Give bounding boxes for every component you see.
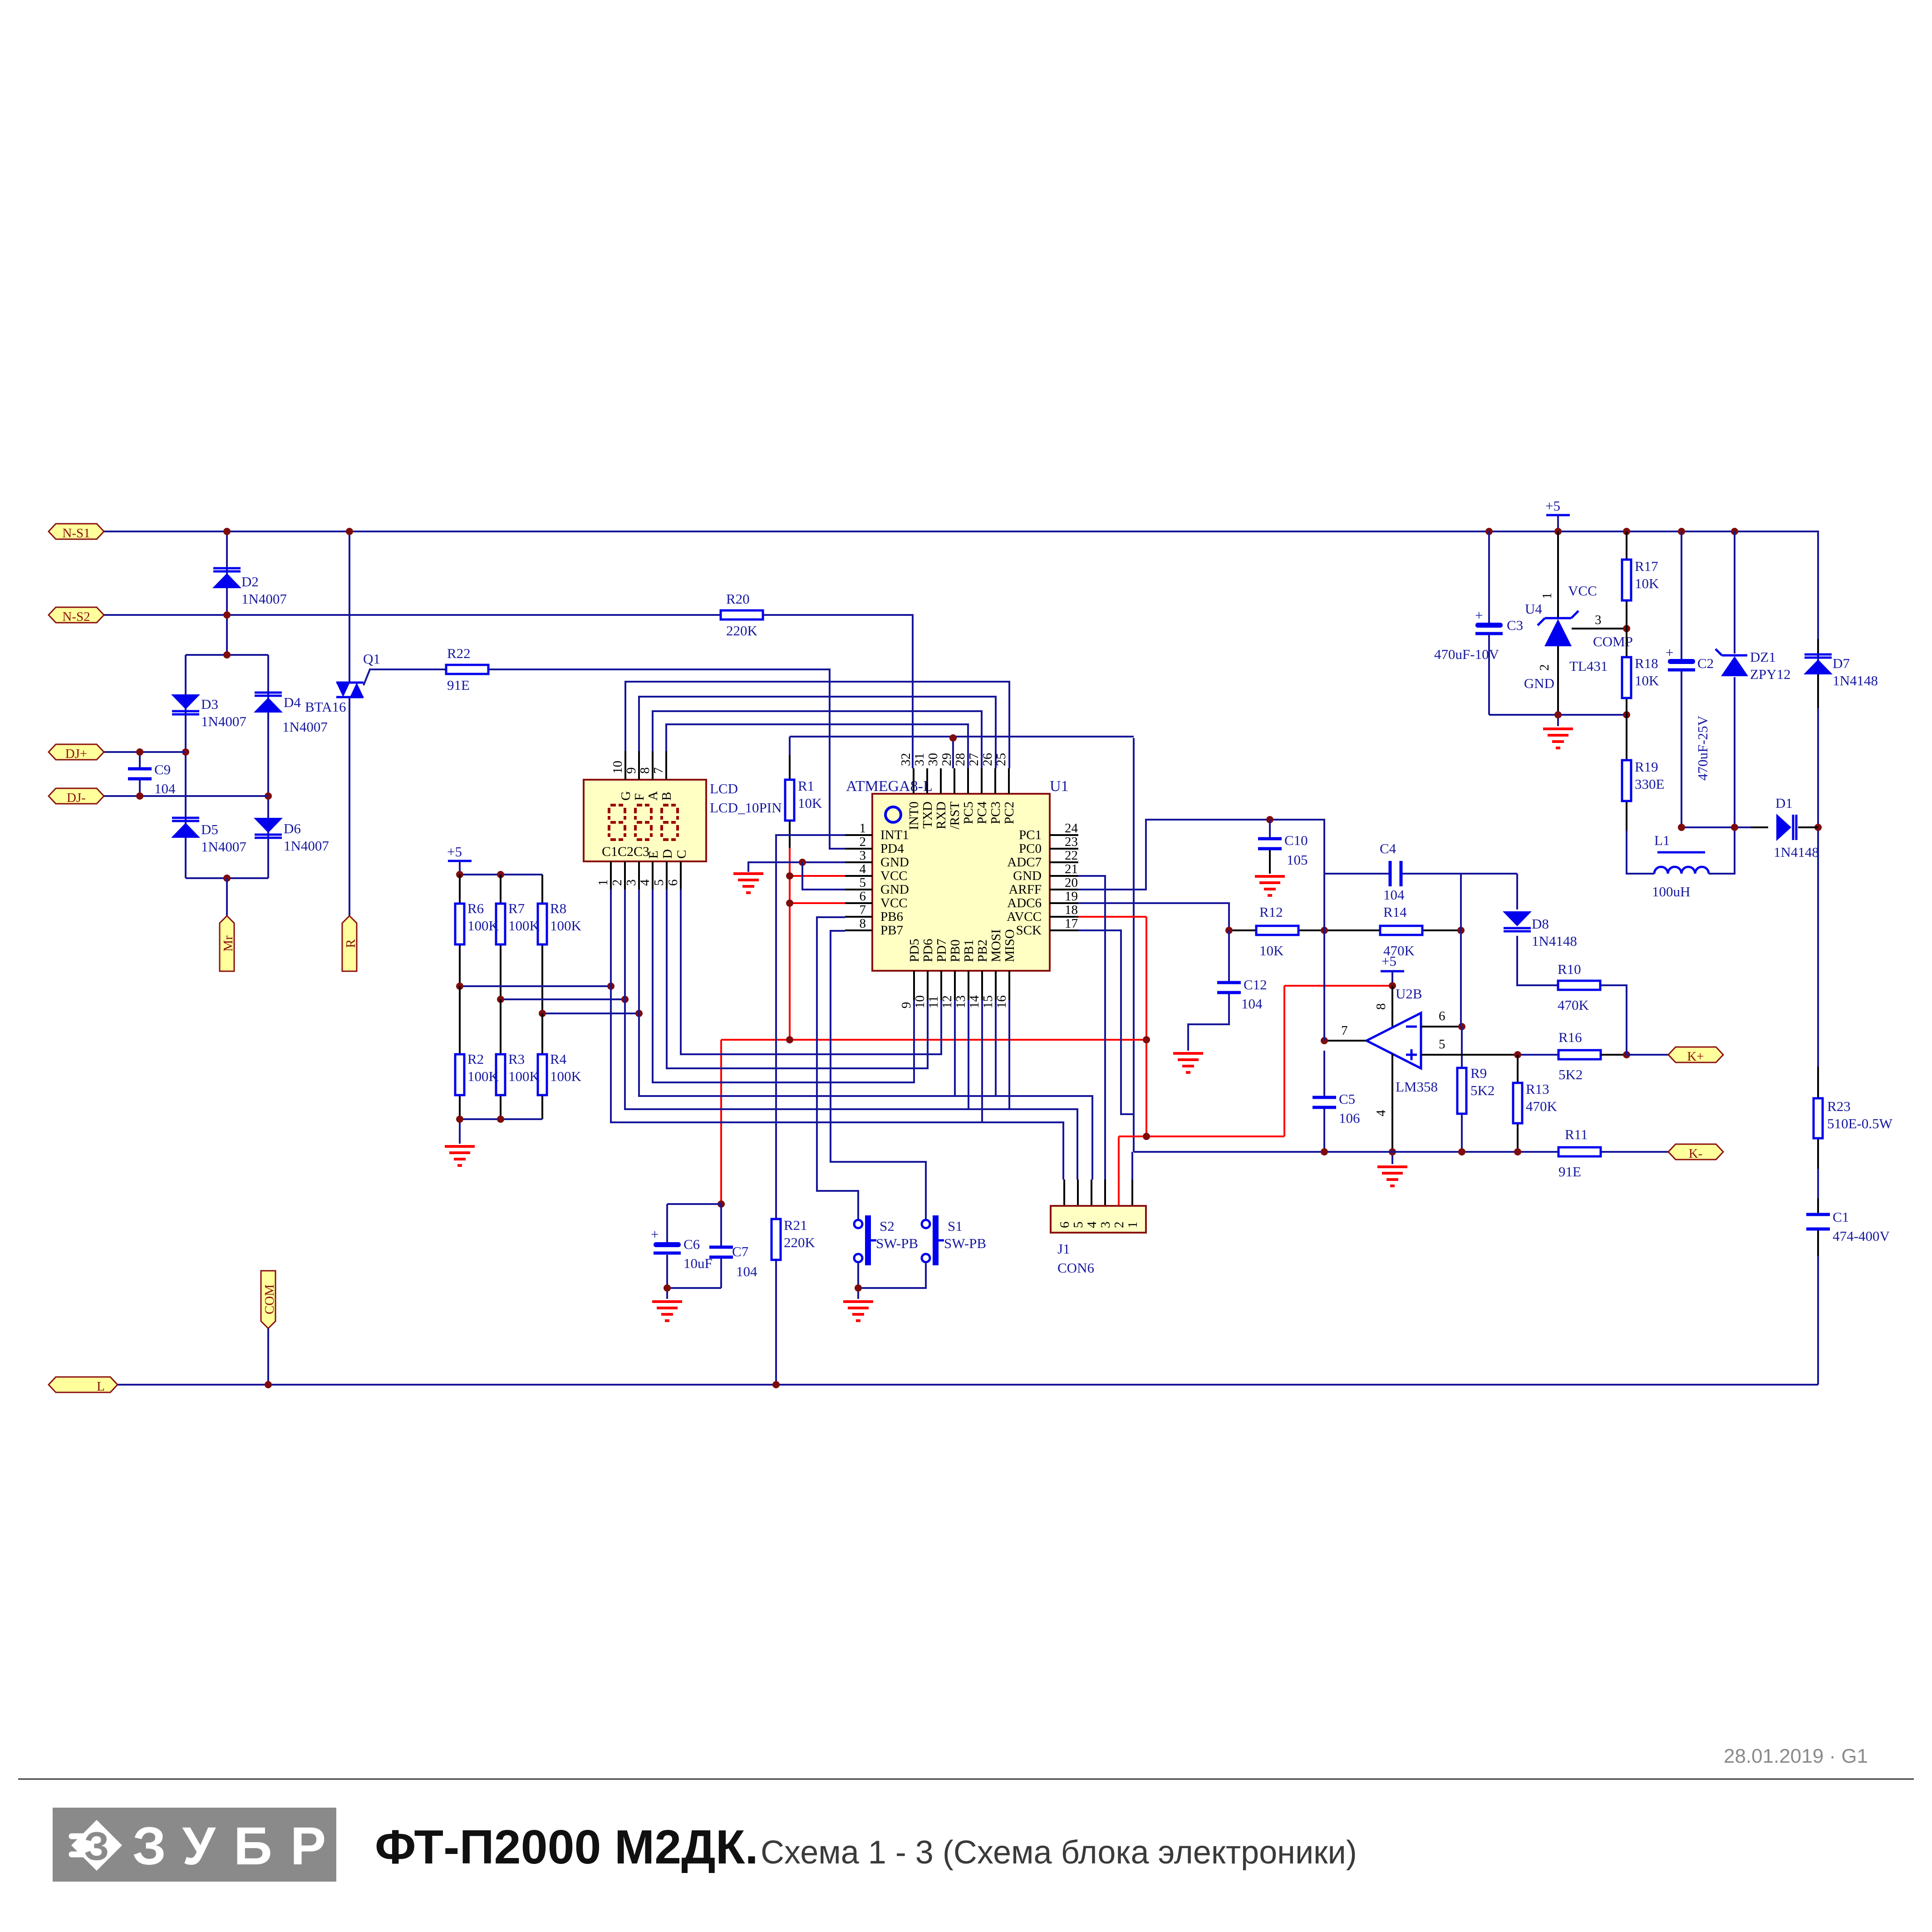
svg-text:ZPY12: ZPY12 — [1750, 666, 1791, 682]
svg-text:DZ1: DZ1 — [1750, 649, 1776, 665]
svg-text:PD7: PD7 — [934, 939, 949, 962]
svg-text:D2: D2 — [241, 574, 259, 590]
svg-text:4: 4 — [1374, 1110, 1388, 1116]
svg-text:R14: R14 — [1383, 904, 1407, 920]
svg-text:106: 106 — [1339, 1110, 1360, 1126]
svg-text:D7: D7 — [1833, 655, 1850, 671]
svg-text:104: 104 — [736, 1263, 757, 1279]
svg-text:PC5: PC5 — [961, 801, 976, 824]
svg-text:6: 6 — [666, 880, 680, 886]
svg-text:PD4: PD4 — [880, 841, 904, 856]
svg-text:K-: K- — [1689, 1146, 1703, 1161]
svg-text:14: 14 — [967, 995, 982, 1009]
svg-text:20: 20 — [1065, 875, 1078, 890]
svg-text:3: 3 — [860, 848, 866, 863]
svg-text:TL431: TL431 — [1569, 658, 1608, 674]
svg-text:1N4007: 1N4007 — [201, 713, 246, 729]
svg-text:22: 22 — [1065, 848, 1078, 863]
svg-text:330E: 330E — [1635, 776, 1664, 792]
svg-text:GND: GND — [880, 882, 909, 897]
svg-text:100K: 100K — [508, 1068, 540, 1084]
svg-text:PB6: PB6 — [880, 909, 903, 924]
svg-text:21: 21 — [1065, 862, 1078, 876]
svg-text:R1: R1 — [798, 778, 814, 794]
svg-text:SW-PB: SW-PB — [876, 1235, 918, 1251]
svg-text:7: 7 — [860, 903, 866, 917]
svg-text:З: З — [84, 1824, 109, 1868]
svg-text:PC3: PC3 — [988, 801, 1003, 824]
svg-text:SW-PB: SW-PB — [944, 1235, 986, 1251]
svg-text:9: 9 — [624, 767, 639, 774]
svg-text:C5: C5 — [1339, 1091, 1355, 1107]
svg-text:470K: 470K — [1526, 1098, 1558, 1114]
svg-text:1N4007: 1N4007 — [241, 591, 287, 607]
svg-text:10uF: 10uF — [683, 1255, 713, 1271]
svg-text:C1C2C3: C1C2C3 — [602, 844, 649, 859]
svg-text:2: 2 — [610, 880, 624, 886]
svg-text:9: 9 — [899, 1002, 914, 1009]
svg-text:R3: R3 — [508, 1051, 525, 1067]
svg-text:ADC6: ADC6 — [1007, 896, 1042, 910]
svg-text:ЗУБР: ЗУБР — [133, 1816, 344, 1876]
svg-text:24: 24 — [1065, 821, 1078, 836]
svg-text:1: 1 — [596, 880, 610, 886]
svg-text:MISO: MISO — [1003, 929, 1017, 962]
svg-text:R9: R9 — [1470, 1065, 1487, 1081]
svg-text:91E: 91E — [1558, 1164, 1581, 1180]
svg-text:S1: S1 — [948, 1218, 963, 1234]
svg-text:2: 2 — [860, 835, 866, 849]
svg-text:ARFF: ARFF — [1008, 882, 1042, 897]
svg-text:8: 8 — [638, 767, 652, 774]
svg-text:LM358: LM358 — [1396, 1079, 1438, 1095]
svg-text:7: 7 — [1341, 1023, 1348, 1038]
svg-text:19: 19 — [1065, 889, 1078, 904]
svg-text:220K: 220K — [784, 1234, 816, 1250]
svg-text:INT0: INT0 — [907, 801, 921, 830]
svg-text:PB1: PB1 — [962, 939, 976, 962]
svg-text:DJ-: DJ- — [67, 791, 86, 805]
svg-text:PC2: PC2 — [1002, 801, 1017, 824]
svg-text:8: 8 — [860, 916, 866, 931]
svg-text:100uH: 100uH — [1652, 884, 1690, 900]
svg-text:4: 4 — [1085, 1221, 1099, 1228]
svg-text:U2B: U2B — [1396, 986, 1422, 1002]
svg-text:RXD: RXD — [934, 801, 949, 829]
svg-text:R22: R22 — [447, 645, 471, 661]
svg-text:6: 6 — [860, 889, 866, 904]
svg-text:510E-0.5W: 510E-0.5W — [1827, 1116, 1893, 1131]
svg-text:/RST: /RST — [948, 801, 962, 830]
svg-text:R8: R8 — [550, 900, 566, 916]
svg-text:28: 28 — [953, 753, 968, 766]
svg-text:4: 4 — [638, 879, 652, 886]
svg-text:23: 23 — [1065, 835, 1078, 849]
svg-text:N-S1: N-S1 — [62, 526, 90, 541]
svg-text:C2: C2 — [1697, 655, 1714, 671]
svg-text:COM: COM — [262, 1284, 277, 1314]
svg-text:100K: 100K — [550, 1068, 582, 1084]
svg-text:C3: C3 — [1507, 617, 1523, 633]
svg-text:12: 12 — [940, 995, 954, 1008]
svg-text:R10: R10 — [1558, 961, 1581, 977]
svg-text:2: 2 — [1537, 664, 1552, 671]
svg-text:Mr: Mr — [221, 935, 236, 952]
svg-text:1: 1 — [860, 821, 866, 836]
svg-text:VCC: VCC — [880, 869, 908, 883]
svg-text:PD6: PD6 — [921, 939, 935, 962]
svg-text:C10: C10 — [1284, 832, 1308, 848]
svg-text:C12: C12 — [1244, 977, 1267, 993]
svg-text:3: 3 — [1098, 1222, 1113, 1229]
svg-text:5K2: 5K2 — [1470, 1082, 1494, 1098]
svg-text:B: B — [659, 792, 674, 801]
svg-text:13: 13 — [954, 995, 968, 1008]
svg-text:LCD_10PIN: LCD_10PIN — [710, 800, 782, 816]
svg-text:R21: R21 — [784, 1217, 807, 1233]
svg-text:TXD: TXD — [920, 801, 935, 829]
svg-text:R4: R4 — [550, 1051, 567, 1067]
svg-text:+5: +5 — [447, 844, 462, 860]
svg-text:R7: R7 — [508, 900, 525, 916]
svg-text:Q1: Q1 — [363, 651, 380, 667]
svg-text:5K2: 5K2 — [1558, 1067, 1583, 1082]
svg-text:PC0: PC0 — [1019, 841, 1042, 856]
svg-text:BTA16: BTA16 — [305, 699, 346, 715]
svg-text:R13: R13 — [1526, 1081, 1549, 1097]
svg-text:U1: U1 — [1050, 778, 1069, 795]
svg-text:7: 7 — [651, 767, 666, 774]
svg-text:INT1: INT1 — [880, 828, 909, 842]
svg-text:+: + — [651, 1226, 659, 1242]
svg-text:31: 31 — [912, 753, 927, 766]
svg-text:100K: 100K — [508, 918, 540, 934]
svg-text:L: L — [97, 1379, 105, 1394]
svg-text:1N4007: 1N4007 — [282, 719, 328, 735]
svg-text:17: 17 — [1065, 916, 1078, 931]
svg-text:A: A — [646, 791, 660, 801]
svg-text:+5: +5 — [1545, 498, 1560, 514]
svg-text:30: 30 — [926, 753, 940, 766]
svg-text:SCK: SCK — [1016, 923, 1042, 938]
svg-text:D3: D3 — [201, 696, 218, 712]
svg-text:5: 5 — [1439, 1037, 1445, 1052]
svg-text:+: + — [1475, 607, 1483, 623]
svg-text:D4: D4 — [284, 694, 301, 710]
svg-text:C: C — [674, 850, 689, 859]
svg-text:R16: R16 — [1558, 1029, 1582, 1045]
svg-text:1: 1 — [1126, 1222, 1140, 1229]
svg-text:S2: S2 — [880, 1218, 895, 1234]
svg-text:8: 8 — [1374, 1003, 1388, 1010]
svg-text:PC1: PC1 — [1019, 828, 1042, 842]
svg-text:N-S2: N-S2 — [62, 610, 90, 624]
svg-text:104: 104 — [1383, 887, 1405, 903]
svg-text:AVCC: AVCC — [1007, 909, 1042, 924]
svg-text:R20: R20 — [726, 591, 750, 607]
svg-text:6: 6 — [1057, 1222, 1072, 1229]
svg-text:R17: R17 — [1635, 558, 1658, 574]
svg-text:3: 3 — [624, 880, 639, 886]
svg-text:100K: 100K — [467, 1068, 499, 1084]
svg-text:474-400V: 474-400V — [1833, 1228, 1890, 1244]
svg-text:100K: 100K — [550, 918, 582, 934]
svg-text:Схема 1 - 3 (Схема блока элект: Схема 1 - 3 (Схема блока электроники) — [761, 1834, 1357, 1871]
svg-text:PD5: PD5 — [907, 939, 922, 962]
svg-text:3: 3 — [1595, 613, 1602, 627]
svg-text:91E: 91E — [447, 677, 470, 693]
svg-text:ФТ-П2000 М2ДК.: ФТ-П2000 М2ДК. — [375, 1820, 758, 1874]
svg-text:5: 5 — [1071, 1222, 1086, 1229]
svg-text:105: 105 — [1287, 852, 1308, 868]
svg-text:15: 15 — [981, 995, 995, 1008]
svg-text:104: 104 — [1241, 996, 1263, 1012]
svg-text:R6: R6 — [467, 900, 484, 916]
svg-text:100K: 100K — [467, 918, 499, 934]
svg-text:VCC: VCC — [1568, 583, 1597, 599]
svg-text:32: 32 — [899, 753, 913, 766]
svg-text:K+: K+ — [1687, 1049, 1704, 1064]
svg-text:G: G — [619, 791, 633, 801]
svg-text:J1: J1 — [1057, 1241, 1070, 1257]
svg-text:470K: 470K — [1558, 997, 1589, 1013]
svg-text:6: 6 — [1439, 1009, 1445, 1023]
svg-text:27: 27 — [967, 753, 981, 766]
svg-text:VCC: VCC — [880, 896, 908, 910]
svg-text:L1: L1 — [1654, 832, 1670, 848]
svg-text:DJ+: DJ+ — [65, 747, 88, 761]
svg-text:220K: 220K — [726, 623, 758, 639]
svg-text:1N4148: 1N4148 — [1774, 844, 1819, 860]
svg-text:D6: D6 — [284, 821, 301, 836]
svg-text:D1: D1 — [1775, 795, 1793, 811]
svg-text:26: 26 — [980, 753, 995, 766]
svg-text:11: 11 — [926, 996, 941, 1008]
svg-text:R19: R19 — [1635, 759, 1658, 775]
svg-text:C4: C4 — [1380, 841, 1396, 856]
svg-text:C6: C6 — [683, 1236, 700, 1252]
svg-text:C1: C1 — [1833, 1209, 1849, 1225]
svg-text:470K: 470K — [1383, 943, 1415, 959]
svg-text:PB2: PB2 — [975, 939, 990, 962]
svg-text:R: R — [344, 939, 358, 948]
svg-text:10K: 10K — [1635, 575, 1659, 591]
svg-text:C7: C7 — [732, 1244, 748, 1259]
svg-text:CON6: CON6 — [1057, 1260, 1094, 1276]
svg-text:GND: GND — [880, 855, 909, 870]
svg-text:E: E — [646, 850, 661, 859]
svg-text:D: D — [660, 849, 675, 859]
svg-text:+: + — [1666, 644, 1673, 660]
svg-text:ADC7: ADC7 — [1007, 855, 1042, 870]
svg-text:2: 2 — [1112, 1222, 1126, 1229]
svg-text:10: 10 — [610, 761, 625, 774]
svg-text:R12: R12 — [1259, 904, 1283, 920]
svg-text:28.01.2019 · G1: 28.01.2019 · G1 — [1724, 1745, 1868, 1767]
svg-text:PC4: PC4 — [975, 801, 989, 824]
svg-text:D5: D5 — [201, 821, 218, 837]
svg-text:1N4007: 1N4007 — [284, 838, 329, 854]
svg-text:29: 29 — [939, 753, 954, 766]
svg-text:10: 10 — [913, 995, 927, 1008]
svg-text:5: 5 — [652, 880, 666, 886]
svg-text:PB7: PB7 — [880, 923, 903, 938]
svg-text:MOSI: MOSI — [989, 929, 1003, 962]
svg-text:GND: GND — [1013, 869, 1042, 883]
svg-text:25: 25 — [994, 753, 1008, 766]
svg-text:16: 16 — [994, 995, 1009, 1008]
svg-text:R23: R23 — [1827, 1098, 1851, 1114]
svg-text:1: 1 — [1540, 593, 1554, 600]
svg-text:1N4148: 1N4148 — [1833, 673, 1878, 688]
svg-text:470uF-10V: 470uF-10V — [1434, 646, 1499, 662]
svg-text:4: 4 — [860, 862, 866, 876]
svg-text:5: 5 — [860, 875, 866, 890]
svg-text:R11: R11 — [1565, 1126, 1588, 1142]
svg-text:104: 104 — [154, 781, 176, 796]
svg-text:10K: 10K — [798, 795, 822, 811]
svg-text:10K: 10K — [1259, 943, 1284, 959]
svg-text:10K: 10K — [1635, 673, 1659, 688]
svg-text:470uF-25V: 470uF-25V — [1695, 715, 1711, 781]
svg-text:R2: R2 — [467, 1051, 484, 1067]
svg-text:C9: C9 — [154, 762, 171, 777]
svg-text:ATMEGA8-L: ATMEGA8-L — [846, 778, 933, 795]
svg-text:R18: R18 — [1635, 655, 1658, 671]
svg-text:F: F — [632, 793, 647, 801]
svg-text:18: 18 — [1065, 903, 1078, 917]
svg-text:GND: GND — [1524, 675, 1554, 691]
svg-text:D8: D8 — [1532, 916, 1549, 932]
svg-text:LCD: LCD — [710, 781, 738, 796]
svg-text:U4: U4 — [1525, 601, 1542, 617]
svg-text:1N4148: 1N4148 — [1532, 933, 1577, 949]
svg-text:1N4007: 1N4007 — [201, 839, 246, 855]
svg-text:PB0: PB0 — [948, 939, 963, 962]
